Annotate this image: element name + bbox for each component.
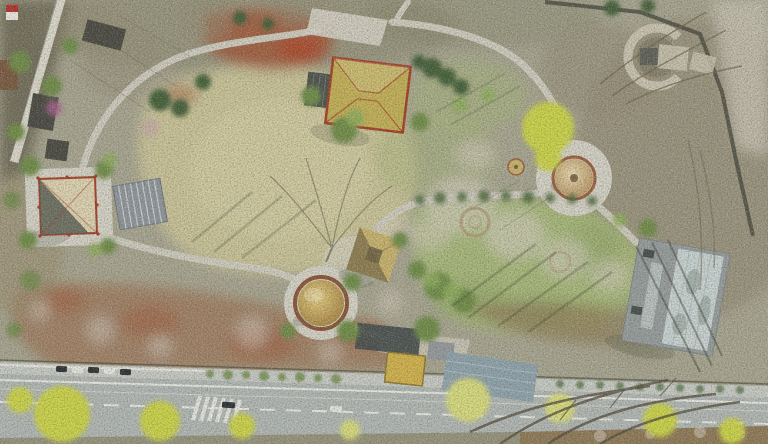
aerial-photo-canvas — [0, 0, 768, 444]
aerial-photo — [0, 0, 768, 444]
noise-texture-light — [0, 0, 768, 444]
